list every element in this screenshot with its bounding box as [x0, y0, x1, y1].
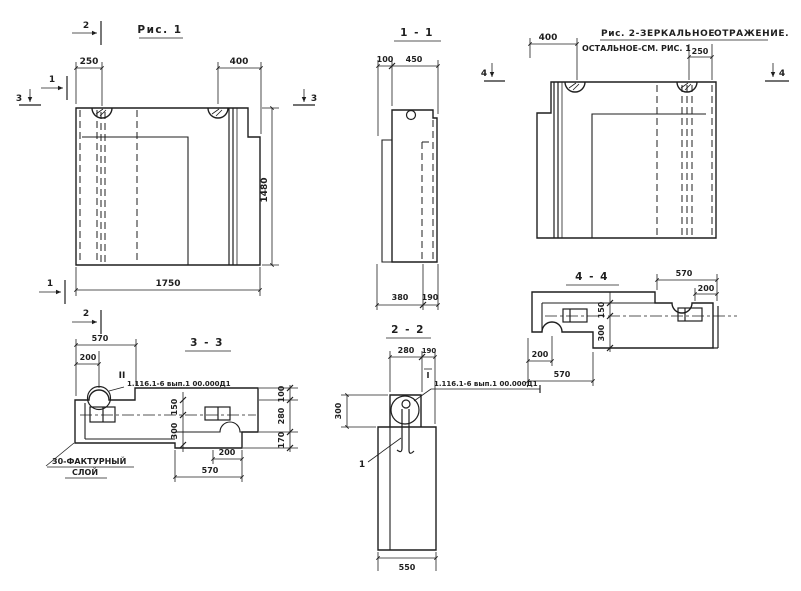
marker-label: 2: [83, 21, 89, 31]
section-marker-4-right: 4: [765, 63, 789, 81]
section-3-3-title: 3 - 3: [190, 337, 224, 349]
figure1-dim-250: 250: [76, 57, 102, 106]
figure2-title-a: Рис. 2-ЗЕРКАЛЬНОЕ: [601, 29, 715, 39]
drawing-sheet: Рис. 1 250 400 1480: [0, 0, 801, 591]
dim-label: 570: [92, 334, 109, 343]
marker-label: 1: [49, 75, 55, 85]
section-2-2-view: 2 - 2 280 190 I 1.116.1-6 вып.1 00.000Д1…: [334, 324, 540, 572]
ref-label: 1.116.1-6 вып.1 00.000Д1: [434, 380, 538, 388]
note-line1: 30-ФАКТУРНЫЙ: [52, 455, 126, 466]
figure1-dim-1480: 1480: [260, 108, 279, 265]
marker-label: 3: [16, 94, 22, 104]
section-3-3-dims-right: 100 280 170: [243, 385, 298, 452]
marker-label: 4: [779, 69, 785, 79]
figure1-title: Рис. 1: [137, 24, 182, 36]
dim-label: 550: [399, 563, 416, 572]
embedded-plate: [563, 309, 587, 322]
section-1-1-outline: [392, 110, 437, 262]
section-1-1-view: 1 - 1 100 450 380 190 4: [377, 27, 505, 310]
figure2-recess: [592, 114, 706, 238]
section-4-4-view: 4 - 4 570 200 150 300: [528, 269, 737, 386]
section-3-3-view: 3 - 3 570 200 II 1.116.1-6 вып.1 00.000Д…: [46, 334, 298, 482]
dim-label: 280: [277, 407, 286, 424]
section-marker-1-top: 1: [41, 75, 67, 100]
figure2-dim-250: 250: [689, 44, 712, 80]
figure1-view: Рис. 1 250 400 1480: [16, 21, 317, 334]
dim-label: 280: [398, 346, 415, 355]
dim-label: 100: [277, 385, 286, 402]
dim-label: 300: [597, 324, 606, 341]
dim-label: 570: [202, 466, 219, 475]
section-marker-3-left: 3: [16, 89, 41, 105]
dim-label: 1750: [155, 279, 180, 289]
item-label: 1: [359, 460, 365, 470]
figure2-subtitle: ОСТАЛЬНОЕ-СМ. РИС. 1: [582, 44, 691, 53]
dim-label: 1480: [260, 177, 270, 202]
section-2-2-title: 2 - 2: [391, 324, 425, 336]
ref-label: 1.116.1-6 вып.1 00.000Д1: [127, 380, 231, 388]
dim-label: 450: [406, 55, 423, 64]
weld-mark: II: [119, 371, 126, 381]
section-4-4-dims-vertical: 150 300: [597, 292, 613, 352]
section-2-2-dims-top: 280 190: [390, 346, 436, 424]
dim-label: 150: [170, 398, 179, 415]
section-1-1-title: 1 - 1: [400, 27, 434, 39]
dim-label: 190: [422, 347, 437, 355]
dim-label: 250: [692, 47, 709, 56]
item-callout-1: 1: [359, 438, 401, 470]
marker-label: 4: [481, 69, 487, 79]
dim-label: 570: [676, 269, 693, 278]
section-2-2-base: [378, 427, 436, 550]
hairpin-leg: [397, 409, 402, 452]
section-4-4-outline: [532, 292, 713, 348]
marker-label: 2: [83, 309, 89, 319]
dim-label: 400: [230, 57, 249, 67]
dim-label: 380: [392, 293, 409, 302]
figure2-title-b: ОТРАЖЕНИЕ.: [714, 29, 789, 39]
hairpin-leg: [409, 409, 414, 453]
section-2-2-dim-300: 300: [334, 395, 388, 427]
dim-label: 190: [422, 293, 439, 302]
dim-label: 200: [532, 350, 549, 359]
facing-layer-line: [85, 403, 175, 439]
section-2-2-dim-550: 550: [378, 552, 436, 572]
dim-label: 570: [554, 370, 571, 379]
section-marker-1-bottom: 1: [39, 279, 65, 304]
section-4-4-dims-bottom: 200 570: [528, 336, 593, 386]
section-marker-4-left: 4: [481, 63, 505, 81]
figure2-outline: [537, 82, 716, 238]
dim-label: 300: [334, 402, 343, 419]
dim-label: 250: [80, 57, 99, 67]
loop-anchor: [402, 400, 410, 408]
marker-label: 3: [311, 94, 317, 104]
section-4-4-title: 4 - 4: [575, 271, 609, 283]
figure1-dim-400: 400: [218, 57, 261, 134]
dim-label: 170: [277, 431, 286, 448]
figure1-recess: [82, 137, 188, 265]
technical-drawing: Рис. 1 250 400 1480: [0, 0, 801, 591]
facing-layer-note: 30-ФАКТУРНЫЙ СЛОЙ: [46, 443, 134, 478]
dim-label: 200: [219, 448, 236, 457]
section-1-1-dims-top: 100 450: [377, 55, 438, 136]
dim-label: 200: [80, 353, 97, 362]
section-marker-2-bottom: 2: [72, 309, 101, 334]
figure2-view: Рис. 2-ЗЕРКАЛЬНОЕ ОТРАЖЕНИЕ. ОСТАЛЬНОЕ-С…: [530, 29, 789, 238]
dim-label: 200: [698, 284, 715, 293]
marker-label: 1: [47, 279, 53, 289]
section-marker-3-right: 3: [293, 89, 317, 105]
dim-label: 400: [539, 33, 558, 43]
figure1-dim-1750: 1750: [76, 267, 260, 296]
section-marker-2-top: 2: [72, 21, 101, 45]
section-4-4-dims-top: 570 200: [657, 269, 717, 301]
section-3-3-dims-bottom: 200 570: [175, 448, 242, 482]
dim-label: 100: [377, 55, 394, 64]
lifting-loop-icon: [407, 111, 416, 120]
section-1-1-dims-bottom: 380 190: [377, 264, 439, 310]
section-1-1-flange: [382, 140, 392, 262]
dim-label: 300: [170, 422, 179, 439]
weld-mark: I: [427, 371, 430, 380]
dim-label: 150: [597, 301, 606, 318]
band-step-line: [175, 422, 242, 432]
figure2-dim-400: 400: [530, 33, 577, 80]
note-line2: СЛОЙ: [72, 466, 98, 477]
